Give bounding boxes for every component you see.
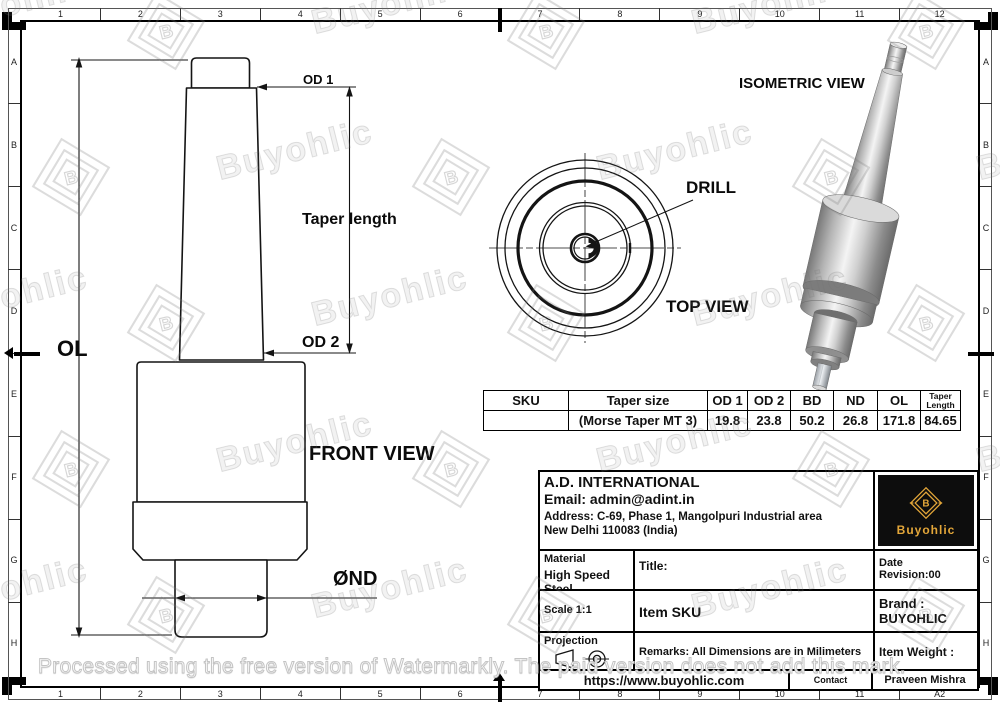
grid-ref-G: G xyxy=(8,519,20,602)
grid-ref-D: D xyxy=(8,269,20,352)
front-view-label: FRONT VIEW xyxy=(309,443,435,466)
grid-ref-C: C xyxy=(980,186,992,269)
drawing-sheet: 123456789101112 1234567891011A2 ABCDEFGH… xyxy=(0,0,1000,707)
spec-table-value-row: (Morse Taper MT 3) 19.8 23.8 50.2 26.8 1… xyxy=(484,411,961,431)
spec-value-ol: 171.8 xyxy=(878,411,921,431)
grid-ref-2: 2 xyxy=(100,688,180,700)
isometric-view-label: ISOMETRIC VIEW xyxy=(739,75,865,92)
svg-text:B: B xyxy=(922,498,929,509)
grid-ref-2: 2 xyxy=(100,8,180,20)
spec-value-taper-length: 84.65 xyxy=(921,411,961,431)
company-address-2: New Delhi 110083 (India) xyxy=(544,524,869,538)
spec-header-ol: OL xyxy=(878,391,921,411)
drill-label: DRILL xyxy=(686,178,736,198)
spec-table-header-row: SKU Taper size OD 1 OD 2 BD ND OL Taper … xyxy=(484,391,961,411)
od1-label: OD 1 xyxy=(303,72,333,87)
grid-ref-B: B xyxy=(8,103,20,186)
spec-header-od2: OD 2 xyxy=(748,391,791,411)
revision-value: Revision:00 xyxy=(879,569,973,581)
grid-ref-E: E xyxy=(8,353,20,436)
center-mark-left xyxy=(14,352,40,356)
logo-cell: B Buyohlic xyxy=(875,472,977,551)
grid-ref-A: A xyxy=(8,21,20,103)
grid-ref-11: 11 xyxy=(819,8,899,20)
grid-ref-F: F xyxy=(8,436,20,519)
logo-wordmark: Buyohlic xyxy=(897,523,956,537)
item-sku-label: Item SKU xyxy=(639,604,869,620)
top-view-label: TOP VIEW xyxy=(666,297,749,317)
spec-header-bd: BD xyxy=(791,391,834,411)
material-label: Material xyxy=(544,553,629,565)
grid-ref-8: 8 xyxy=(579,8,659,20)
grid-ref-3: 3 xyxy=(180,8,260,20)
grid-ref-C: C xyxy=(8,186,20,269)
brand-label: Brand : xyxy=(879,596,973,611)
grid-ref-10: 10 xyxy=(739,8,819,20)
grid-ref-A: A xyxy=(980,21,992,103)
spec-value-taper-size: (Morse Taper MT 3) xyxy=(569,411,708,431)
spec-header-taper-length: Taper Length xyxy=(921,391,961,411)
center-mark-right xyxy=(968,352,994,356)
grid-ref-E: E xyxy=(980,353,992,436)
scale-cell: Scale 1:1 xyxy=(540,591,635,633)
grid-ref-F: F xyxy=(980,436,992,519)
grid-ref-5: 5 xyxy=(340,688,420,700)
grid-ref-1: 1 xyxy=(21,8,100,20)
material-cell: Material High Speed Steel xyxy=(540,551,635,591)
company-email: Email: admin@adint.in xyxy=(544,491,869,508)
grid-ref-H: H xyxy=(8,602,20,685)
company-address-1: Address: C-69, Phase 1, Mangolpuri Indus… xyxy=(544,510,869,524)
title-cell: Title: xyxy=(635,551,875,591)
company-info-cell: A.D. INTERNATIONAL Email: admin@adint.in… xyxy=(540,472,875,551)
date-revision-cell: Date Revision:00 xyxy=(875,551,977,591)
grid-ref-7: 7 xyxy=(500,8,580,20)
spec-table: SKU Taper size OD 1 OD 2 BD ND OL Taper … xyxy=(483,390,961,431)
od2-label: OD 2 xyxy=(302,334,339,352)
projection-label: Projection xyxy=(544,635,629,647)
grid-ref-4: 4 xyxy=(260,8,340,20)
scale-value: Scale 1:1 xyxy=(544,604,629,616)
spec-value-nd: 26.8 xyxy=(834,411,878,431)
grid-ref-6: 6 xyxy=(420,8,500,20)
grid-ref-G: G xyxy=(980,519,992,602)
item-sku-cell: Item SKU xyxy=(635,591,875,633)
spec-value-bd: 50.2 xyxy=(791,411,834,431)
spec-value-od2: 23.8 xyxy=(748,411,791,431)
company-name: A.D. INTERNATIONAL xyxy=(544,474,869,491)
grid-ref-5: 5 xyxy=(340,8,420,20)
date-label: Date xyxy=(879,557,973,569)
spec-value-od1: 19.8 xyxy=(708,411,748,431)
spec-header-nd: ND xyxy=(834,391,878,411)
center-mark-top xyxy=(498,8,502,32)
grid-ref-D: D xyxy=(980,269,992,352)
ol-label: OL xyxy=(57,336,88,362)
spec-value-sku xyxy=(484,411,569,431)
grid-ref-B: B xyxy=(980,103,992,186)
grid-ref-12: 12 xyxy=(899,8,979,20)
spec-header-taper-size: Taper size xyxy=(569,391,708,411)
grid-ref-1: 1 xyxy=(21,688,100,700)
nd-diameter-label: ØND xyxy=(333,568,377,591)
spec-header-od1: OD 1 xyxy=(708,391,748,411)
grid-ref-H: H xyxy=(980,602,992,685)
grid-ref-4: 4 xyxy=(260,688,340,700)
title-label: Title: xyxy=(639,559,869,573)
grid-ref-9: 9 xyxy=(659,8,739,20)
grid-ref-6: 6 xyxy=(420,688,500,700)
brand-value: BUYOHLIC xyxy=(879,611,973,626)
watermarkly-notice: Processed using the free version of Wate… xyxy=(38,655,968,679)
buyohlic-diamond-icon: B xyxy=(908,485,944,521)
grid-ref-3: 3 xyxy=(180,688,260,700)
material-value: High Speed Steel xyxy=(544,568,629,591)
center-mark-left-arrow xyxy=(4,347,13,359)
taper-length-label: Taper length xyxy=(302,211,397,229)
brand-cell: Brand : BUYOHLIC xyxy=(875,591,977,633)
buyohlic-logo: B Buyohlic xyxy=(878,475,974,546)
spec-header-sku: SKU xyxy=(484,391,569,411)
